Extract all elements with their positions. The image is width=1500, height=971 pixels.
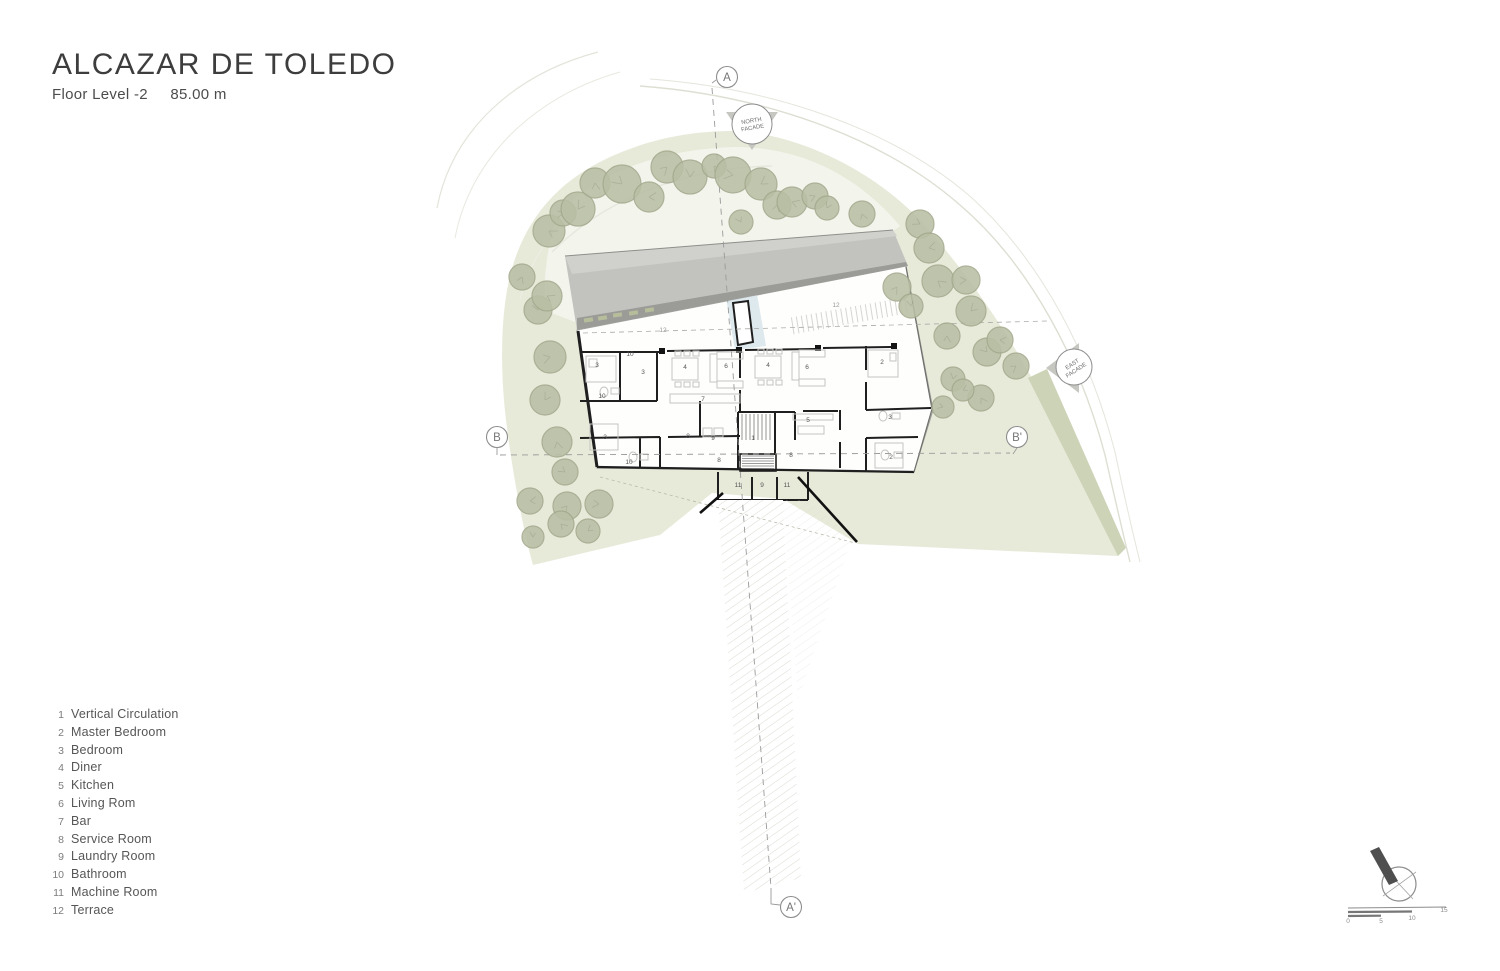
room-number-label: 11 (784, 482, 791, 489)
tree (899, 294, 923, 318)
room-number-label: 8 (717, 457, 721, 464)
section-marker-letter: A (723, 72, 731, 84)
room-number-label: 11 (735, 482, 742, 489)
room-number-label: 3 (641, 369, 645, 376)
tree (542, 427, 572, 457)
scale-tick-label: 0 (1346, 918, 1350, 925)
tree (634, 182, 664, 212)
room-number-label: 4 (683, 364, 687, 371)
tree (849, 201, 875, 227)
tree (932, 396, 954, 418)
tree (517, 488, 543, 514)
room-number-label: 10 (625, 459, 633, 466)
tree (952, 379, 974, 401)
room-number-label: 4 (766, 362, 770, 369)
room-number-label: 12 (659, 327, 667, 334)
room-number-label: 1 (751, 435, 755, 442)
room-number-label: 9 (711, 435, 715, 442)
tree (552, 459, 578, 485)
tree (956, 296, 986, 326)
tree (1003, 353, 1029, 379)
room-number-label: 8 (686, 433, 690, 440)
tree (530, 385, 560, 415)
tree (585, 490, 613, 518)
tree (534, 341, 566, 373)
section-marker-B: B (487, 427, 508, 448)
tree (934, 323, 960, 349)
tree (914, 233, 944, 263)
drawing-sheet: ALCAZAR DE TOLEDO Floor Level -2 85.00 m… (0, 0, 1500, 971)
room-number-label: 7 (701, 396, 705, 403)
section-marker-letter: B (493, 432, 501, 444)
room-number-label: 10 (626, 351, 634, 358)
section-marker-A-prime: A' (781, 897, 802, 918)
tree (548, 511, 574, 537)
scale-tick-label: 5 (1379, 918, 1383, 925)
section-marker-A: A (717, 67, 738, 88)
room-number-label: 12 (832, 302, 840, 309)
tree (509, 264, 535, 290)
section-marker-letter: A' (786, 902, 796, 914)
tree (952, 266, 980, 294)
room-number-label: 3 (603, 434, 607, 441)
room-number-label: 8 (789, 452, 793, 459)
room-number-label: 2 (880, 359, 884, 366)
room-number-label: 9 (760, 482, 764, 489)
section-marker-B-prime: B' (1007, 427, 1028, 448)
section-marker-letter: B' (1012, 432, 1022, 444)
compass-needle (1370, 847, 1398, 885)
scale-tick-label: 10 (1408, 915, 1416, 922)
tree (922, 265, 954, 297)
room-number-label: 6 (805, 364, 809, 371)
tree (522, 526, 544, 548)
north-compass (1370, 847, 1416, 901)
access-ramp (718, 500, 852, 893)
scale-tick-label: 15 (1440, 907, 1448, 914)
room-number-label: 2 (889, 454, 893, 461)
room-number-label: 6 (724, 363, 728, 370)
scale-bar: 051015 (1346, 907, 1448, 925)
tree (987, 327, 1013, 353)
tree (729, 210, 753, 234)
room-number-label: 3 (595, 362, 599, 369)
room-number-label: 10 (598, 393, 606, 400)
site-plan-drawing: 12123103464621075389131088211911 NORTHFA… (0, 0, 1500, 971)
ramp-hatch-fan (783, 500, 852, 700)
tree (532, 281, 562, 311)
tree (815, 196, 839, 220)
room-number-label: 5 (806, 417, 810, 424)
tree (576, 519, 600, 543)
room-number-label: 3 (888, 414, 892, 421)
